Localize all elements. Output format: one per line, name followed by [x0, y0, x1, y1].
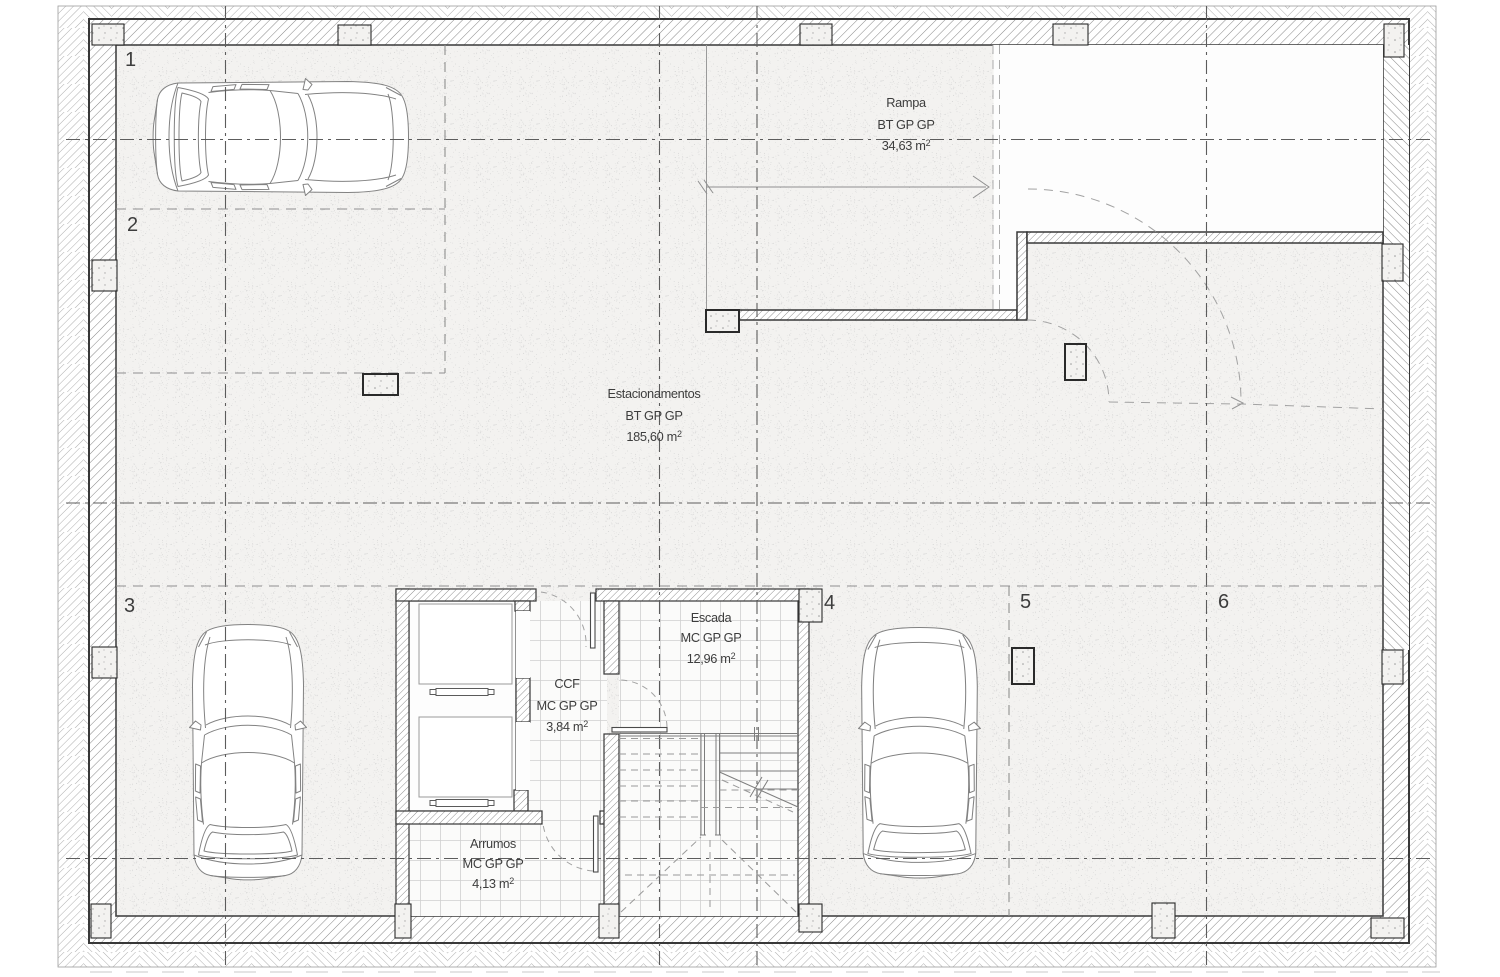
svg-text:BT GP GP: BT GP GP — [877, 117, 934, 132]
svg-text:12,96 m2: 12,96 m2 — [687, 651, 736, 666]
svg-text:4: 4 — [824, 592, 835, 614]
svg-text:1: 1 — [125, 49, 136, 71]
svg-text:BT GP GP: BT GP GP — [625, 408, 682, 423]
svg-text:4,13 m2: 4,13 m2 — [472, 876, 514, 891]
svg-text:MC GP GP: MC GP GP — [537, 698, 598, 713]
svg-text:2: 2 — [127, 214, 138, 236]
svg-text:MC GP GP: MC GP GP — [681, 630, 742, 645]
svg-text:Arrumos: Arrumos — [470, 836, 516, 851]
svg-text:Rampa: Rampa — [886, 95, 927, 110]
svg-text:5: 5 — [1020, 591, 1031, 613]
svg-text:3: 3 — [124, 595, 135, 617]
svg-text:Estacionamentos: Estacionamentos — [608, 386, 701, 401]
svg-text:MC GP GP: MC GP GP — [463, 856, 524, 871]
svg-text:185,60 m2: 185,60 m2 — [626, 429, 682, 444]
svg-text:6: 6 — [1218, 591, 1229, 613]
svg-text:CCF: CCF — [554, 676, 580, 691]
svg-text:34,63 m2: 34,63 m2 — [882, 138, 931, 153]
svg-text:Escada: Escada — [691, 610, 733, 625]
svg-text:3,84 m2: 3,84 m2 — [546, 719, 588, 734]
